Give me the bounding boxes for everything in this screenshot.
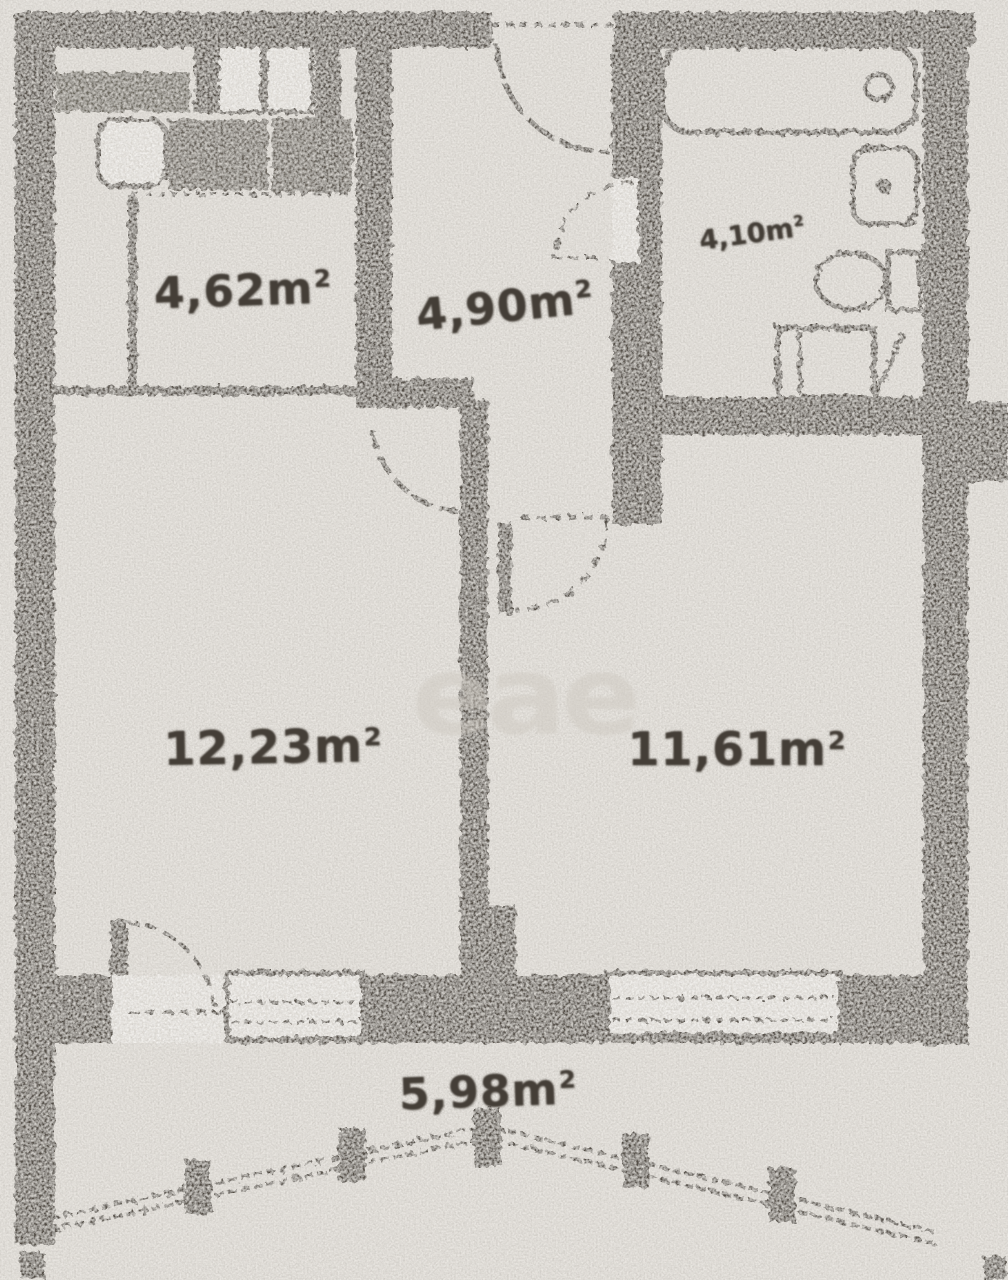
- area-superscript: 2: [364, 722, 383, 751]
- room-area-label: 11,61m2: [627, 722, 846, 776]
- area-superscript: 2: [573, 275, 594, 305]
- area-superscript: 2: [313, 265, 332, 294]
- area-unit: m: [763, 213, 795, 248]
- area-value: 12,23: [163, 719, 314, 776]
- area-unit: m: [526, 274, 578, 330]
- area-unit: m: [778, 722, 827, 776]
- area-superscript: 2: [828, 726, 847, 755]
- room-area-label: 5,98m2: [398, 1063, 578, 1120]
- room-area-label: 4,62m2: [153, 262, 333, 319]
- area-value: 4,62: [153, 265, 267, 320]
- area-value: 5,98: [398, 1066, 512, 1121]
- area-superscript: 2: [558, 1066, 577, 1095]
- floor-plan: еае 4,62m2 4,90m2 4,10m2 12,23m2 11,61m2…: [0, 0, 1008, 1280]
- area-value: 11,61: [627, 722, 778, 776]
- watermark: еае: [412, 633, 637, 760]
- area-unit: m: [266, 263, 315, 316]
- area-unit: m: [314, 718, 364, 773]
- area-unit: m: [511, 1064, 560, 1117]
- room-area-label: 12,23m2: [163, 718, 383, 776]
